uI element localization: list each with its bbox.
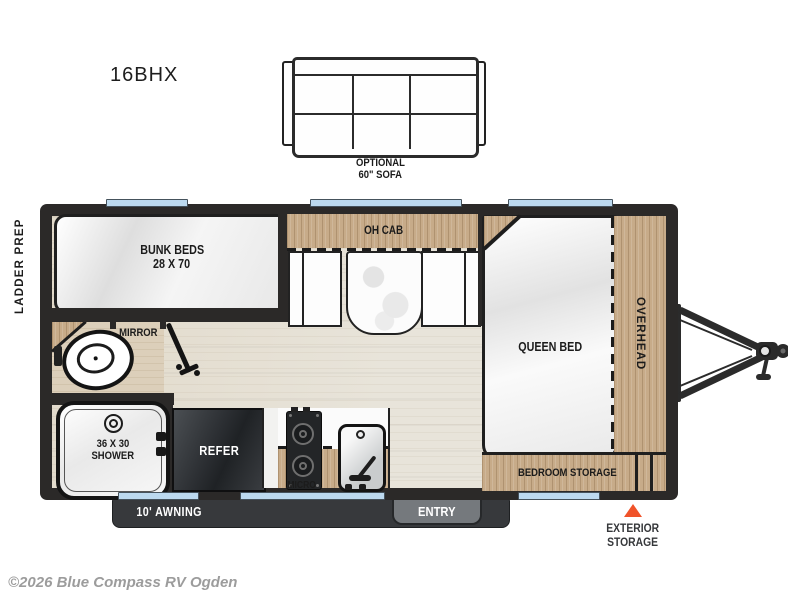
shower-door-latch bbox=[156, 447, 166, 456]
sofa-cushion-divider bbox=[352, 74, 354, 149]
exterior-storage-label-line2: STORAGE bbox=[583, 536, 683, 550]
dinette-bench-left bbox=[302, 251, 342, 327]
sofa-body bbox=[292, 57, 479, 158]
dinette-bench-right bbox=[421, 251, 466, 327]
microwave-label: MICRO bbox=[262, 478, 342, 492]
shower-door-latch bbox=[156, 432, 166, 441]
sink-knob bbox=[345, 484, 352, 490]
oh-cab-label: OH CAB bbox=[364, 225, 403, 237]
bedroom-storage-label: BEDROOM STORAGE bbox=[490, 455, 645, 491]
toilet-tank bbox=[54, 346, 62, 366]
floorplan-page: 16BHX OPTIONAL 60" SOFA 10' AWNING ENTRY bbox=[0, 0, 800, 600]
window bbox=[240, 492, 385, 500]
sink-knob bbox=[359, 484, 366, 490]
ladder-prep-label: LADDER PREP bbox=[14, 210, 32, 322]
bunk-beds-label-line1: BUNK BEDS bbox=[57, 243, 287, 257]
refrigerator: REFER bbox=[172, 408, 266, 492]
page-title: 16BHX bbox=[110, 64, 178, 87]
exterior-storage-label-line1: EXTERIOR bbox=[583, 522, 683, 536]
trailer-hitch-icon bbox=[666, 292, 788, 414]
refrigerator-label: REFER bbox=[199, 443, 239, 458]
sink-icon bbox=[338, 424, 386, 492]
sofa-caption-line2: 60" SOFA bbox=[320, 169, 440, 181]
shower-drain-icon bbox=[104, 414, 123, 433]
dinette-table bbox=[346, 251, 423, 335]
queen-bed-label: QUEEN BED bbox=[485, 340, 615, 354]
sofa-seat-line bbox=[295, 113, 476, 115]
sofa-back-line bbox=[295, 74, 476, 76]
entry-label: ENTRY bbox=[418, 504, 455, 519]
entry-door-tab: ENTRY bbox=[392, 498, 482, 525]
shower-label-line1: 36 X 30 bbox=[60, 438, 166, 450]
overhead-label: OVERHEAD bbox=[634, 297, 646, 370]
shower-label-line2: SHOWER bbox=[60, 450, 166, 462]
window bbox=[508, 199, 613, 207]
awning-bar: 10' AWNING ENTRY bbox=[112, 498, 510, 528]
copyright-watermark: ©2026 Blue Compass RV Ogden bbox=[8, 574, 488, 591]
optional-sofa-diagram: OPTIONAL 60" SOFA bbox=[270, 50, 500, 190]
faucet-base bbox=[349, 475, 371, 481]
sofa-cushion-divider bbox=[409, 74, 411, 149]
overhead-cabinet-dinette: OH CAB bbox=[287, 214, 480, 248]
window bbox=[118, 492, 199, 500]
window bbox=[310, 199, 462, 207]
trailer-body: BUNK BEDS 28 X 70 MIRROR bbox=[40, 204, 678, 500]
overhead-cabinet-bedroom: OVERHEAD bbox=[614, 216, 666, 452]
window bbox=[106, 199, 188, 207]
sofa-caption-line1: OPTIONAL bbox=[320, 157, 440, 169]
door-handle-knob bbox=[194, 370, 200, 376]
bunk-front-wall bbox=[52, 308, 290, 322]
bedroom-storage: BEDROOM STORAGE bbox=[482, 452, 666, 491]
stove-knob bbox=[291, 407, 298, 412]
bunk-beds-label-line2: 28 X 70 bbox=[57, 257, 287, 271]
shower: 36 X 30 SHOWER bbox=[56, 401, 170, 500]
bunk-beds: BUNK BEDS 28 X 70 bbox=[54, 214, 290, 314]
exterior-storage-triangle-icon bbox=[624, 504, 642, 517]
window bbox=[518, 492, 600, 500]
awning-label: 10' AWNING bbox=[131, 505, 207, 519]
door-handle-knob bbox=[176, 364, 182, 370]
stove-knob bbox=[303, 407, 310, 412]
queen-bed: QUEEN BED bbox=[482, 215, 618, 461]
